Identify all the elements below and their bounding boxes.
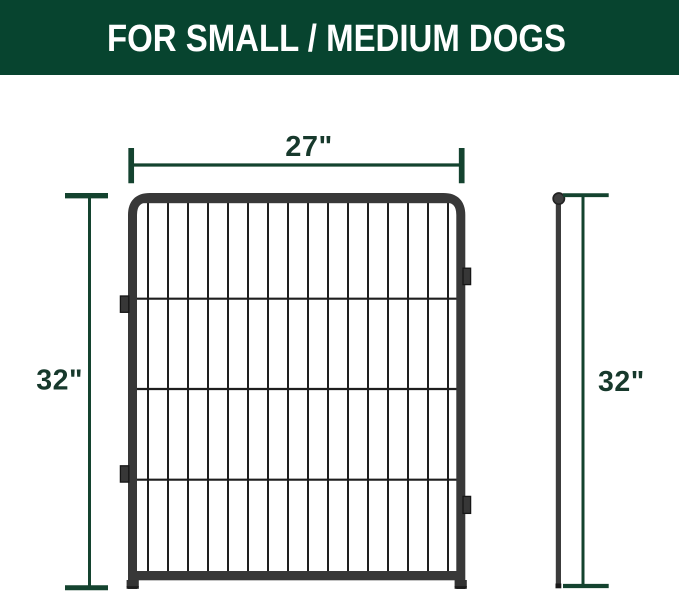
svg-text:32": 32": [36, 365, 83, 397]
svg-text:FOR SMALL / MEDIUM DOGS: FOR SMALL / MEDIUM DOGS: [107, 18, 566, 60]
svg-text:27": 27": [285, 131, 333, 163]
svg-text:32": 32": [598, 366, 645, 398]
